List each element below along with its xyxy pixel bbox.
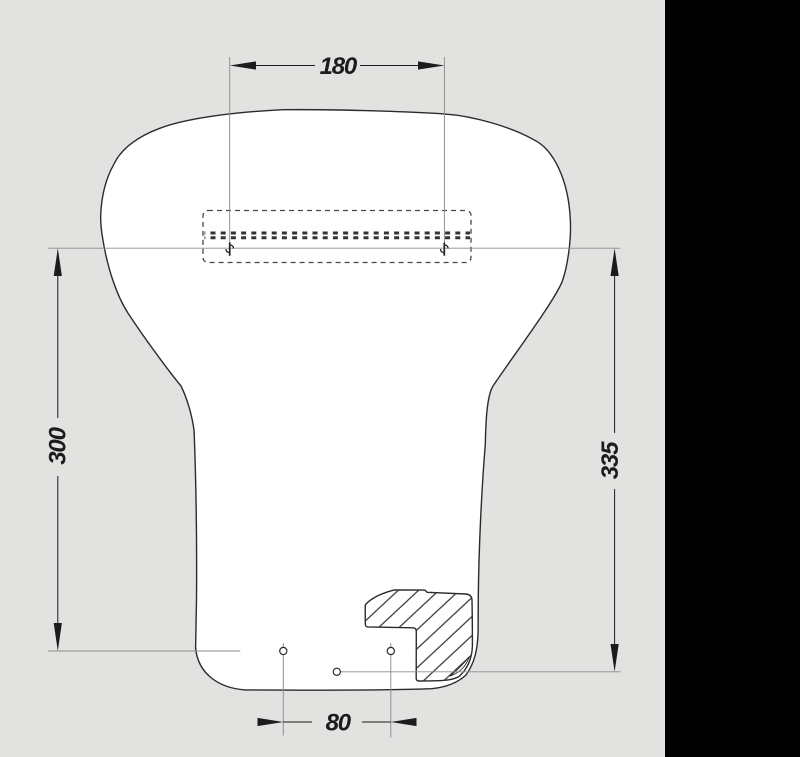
svg-text:300: 300 <box>44 426 71 464</box>
svg-text:80: 80 <box>326 710 352 737</box>
svg-text:180: 180 <box>320 53 358 80</box>
svg-text:335: 335 <box>597 441 624 479</box>
